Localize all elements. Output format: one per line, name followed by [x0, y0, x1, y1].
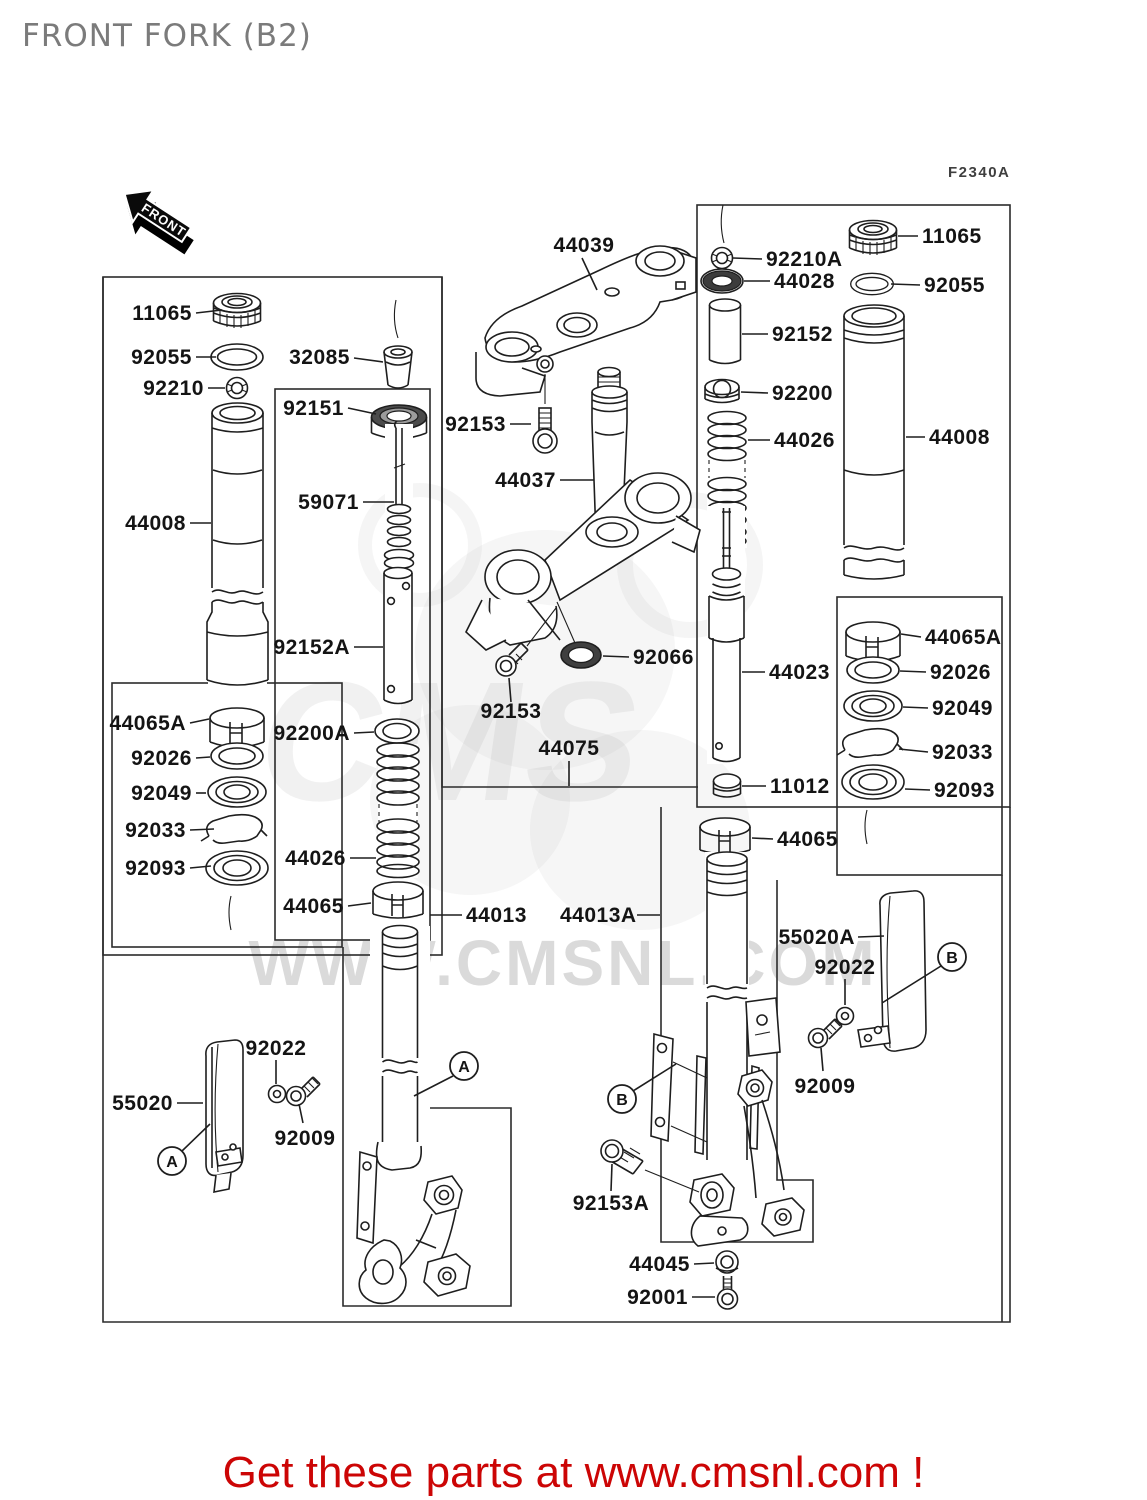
part-label-92009-42: 92009 — [795, 1075, 856, 1098]
part-label-11065-0: 11065 — [132, 302, 192, 325]
part-label-44065-34: 44065 — [777, 828, 838, 851]
part-label-55020-43: 55020 — [112, 1092, 173, 1115]
part-drawing-92210A — [712, 205, 733, 269]
part-label-92066-19: 92066 — [633, 646, 694, 669]
part-drawing-92200A — [375, 719, 419, 743]
callout-letter-A-1: A — [458, 1059, 470, 1076]
part-drawing-seal-stack-right — [837, 622, 904, 844]
part-label-44023-32: 44023 — [769, 661, 830, 684]
part-label-92033-14: 92033 — [125, 819, 186, 842]
part-drawing-92152 — [708, 299, 742, 364]
part-label-92049-13: 92049 — [131, 782, 192, 805]
part-label-44037-18: 44037 — [495, 469, 556, 492]
part-label-44026-9: 44026 — [285, 847, 346, 870]
part-label-92153A-46: 92153A — [573, 1192, 650, 1215]
leader-line-44065-10 — [348, 903, 371, 906]
part-drawing-55020-left-guard — [206, 1040, 243, 1192]
part-drawing-59071 — [385, 421, 414, 576]
part-label-92153-20: 92153 — [481, 700, 542, 723]
part-label-92022-41: 92022 — [815, 956, 876, 979]
callout-letter-B-2: B — [946, 950, 958, 967]
part-label-44026-28: 44026 — [774, 429, 835, 452]
part-label-92022-44: 92022 — [246, 1037, 307, 1060]
part-drawing-92055-right — [851, 273, 894, 294]
leader-line-92093-39 — [905, 789, 930, 790]
part-drawing-44008-right — [842, 305, 906, 579]
leader-line-92033-38 — [899, 749, 928, 752]
part-drawing-seal-stack-left — [201, 708, 268, 930]
leader-line-92055-30 — [891, 284, 920, 285]
leader-line-92026-12 — [196, 757, 210, 758]
part-drawing-32085 — [384, 300, 412, 388]
part-label-92049-37: 92049 — [932, 697, 993, 720]
part-label-92153-17: 92153 — [445, 413, 506, 436]
part-label-44008-3: 44008 — [125, 512, 186, 535]
part-label-44013-22: 44013 — [466, 904, 527, 927]
leader-line-92009-42 — [821, 1048, 823, 1071]
leader-line-92151-5 — [348, 408, 376, 414]
leader-line-44065A-35 — [901, 634, 921, 637]
part-drawing-92152A — [383, 568, 413, 704]
part-drawing-44045 — [716, 1251, 738, 1273]
leader-line-92009-45 — [299, 1104, 303, 1123]
part-label-92152-26: 92152 — [772, 323, 833, 346]
part-label-55020A-40: 55020A — [778, 926, 855, 949]
part-drawing-44026-left-spring — [377, 743, 419, 878]
part-drawing-92001 — [718, 1276, 738, 1309]
part-label-92026-12: 92026 — [131, 747, 192, 770]
part-drawing-92153-bolt-1 — [533, 408, 557, 453]
part-label-92093-15: 92093 — [125, 857, 186, 880]
part-label-92200A-8: 92200A — [273, 722, 350, 745]
part-label-32085-4: 32085 — [289, 346, 350, 369]
part-label-11012-33: 11012 — [770, 775, 830, 798]
part-label-44013A-23: 44013A — [560, 904, 637, 927]
part-label-44065-10: 44065 — [283, 895, 344, 918]
part-label-92152A-7: 92152A — [273, 636, 350, 659]
part-label-44065A-35: 44065A — [925, 626, 1002, 649]
part-drawing-92009-right — [809, 1019, 843, 1048]
part-label-92210A-24: 92210A — [766, 248, 843, 271]
diagram-canvas: CMS WWW.CMSNL.COM — [0, 0, 1147, 1500]
part-label-59071-6: 59071 — [298, 491, 359, 514]
leader-line-92049-37 — [903, 707, 928, 708]
footer-text[interactable]: Get these parts at www.cmsnl.com ! — [0, 1448, 1147, 1498]
part-label-92009-45: 92009 — [275, 1127, 336, 1150]
part-label-92151-5: 92151 — [283, 397, 344, 420]
part-label-44028-25: 44028 — [774, 270, 835, 293]
leader-line-44045-47 — [694, 1263, 714, 1264]
part-label-44075-21: 44075 — [539, 737, 600, 760]
part-drawing-92009-left — [287, 1077, 321, 1106]
leader-line-92153A-46 — [611, 1164, 612, 1191]
leader-line-44065A-11 — [190, 719, 209, 723]
part-label-44065A-11: 44065A — [109, 712, 186, 735]
front-arrow-icon: FRONT — [109, 178, 204, 263]
part-label-92001-48: 92001 — [627, 1286, 688, 1309]
part-label-44045-47: 44045 — [629, 1253, 690, 1276]
page: FRONT FORK (B2) F2340A CMS WWW.CMSNL.COM — [0, 0, 1147, 1500]
leader-line-92200A-8 — [354, 732, 374, 733]
part-drawing-44008-left — [207, 403, 268, 688]
part-drawing-92055-left — [211, 344, 263, 370]
part-drawing-44039-top-clamp — [476, 246, 696, 404]
part-drawing-44065-inner — [373, 882, 423, 918]
part-label-44039-16: 44039 — [554, 234, 615, 257]
leader-line-92026-36 — [900, 671, 926, 672]
leader-line-55020A-40 — [858, 936, 884, 937]
leader-line-92066-19 — [603, 656, 629, 657]
callout-letter-A-0: A — [166, 1154, 178, 1171]
part-label-92200-27: 92200 — [772, 382, 833, 405]
leader-line-11065-0 — [196, 310, 222, 313]
part-label-11065-29: 11065 — [922, 225, 982, 248]
part-label-92210-2: 92210 — [143, 377, 204, 400]
part-label-92033-38: 92033 — [932, 741, 993, 764]
leader-line-32085-4 — [354, 358, 383, 362]
part-label-92026-36: 92026 — [930, 661, 991, 684]
part-drawing-44023 — [707, 506, 745, 764]
callout-letter-B-3: B — [616, 1092, 628, 1109]
part-drawing-92153A — [601, 1140, 699, 1192]
leader-line-92210A-24 — [733, 258, 762, 259]
part-label-92055-1: 92055 — [131, 346, 192, 369]
part-label-92093-39: 92093 — [934, 779, 995, 802]
part-drawing-92022-left — [269, 1086, 286, 1103]
part-label-44008-31: 44008 — [929, 426, 990, 449]
part-drawing-44028 — [701, 269, 743, 293]
part-drawing-11065-right — [850, 221, 897, 256]
leader-line-92033-14 — [190, 829, 214, 830]
part-label-92055-30: 92055 — [924, 274, 985, 297]
part-drawing-92200 — [705, 380, 739, 403]
leader-line-44065-34 — [752, 838, 773, 839]
leader-line-92200-27 — [741, 392, 768, 393]
part-drawing-92210 — [227, 378, 248, 399]
